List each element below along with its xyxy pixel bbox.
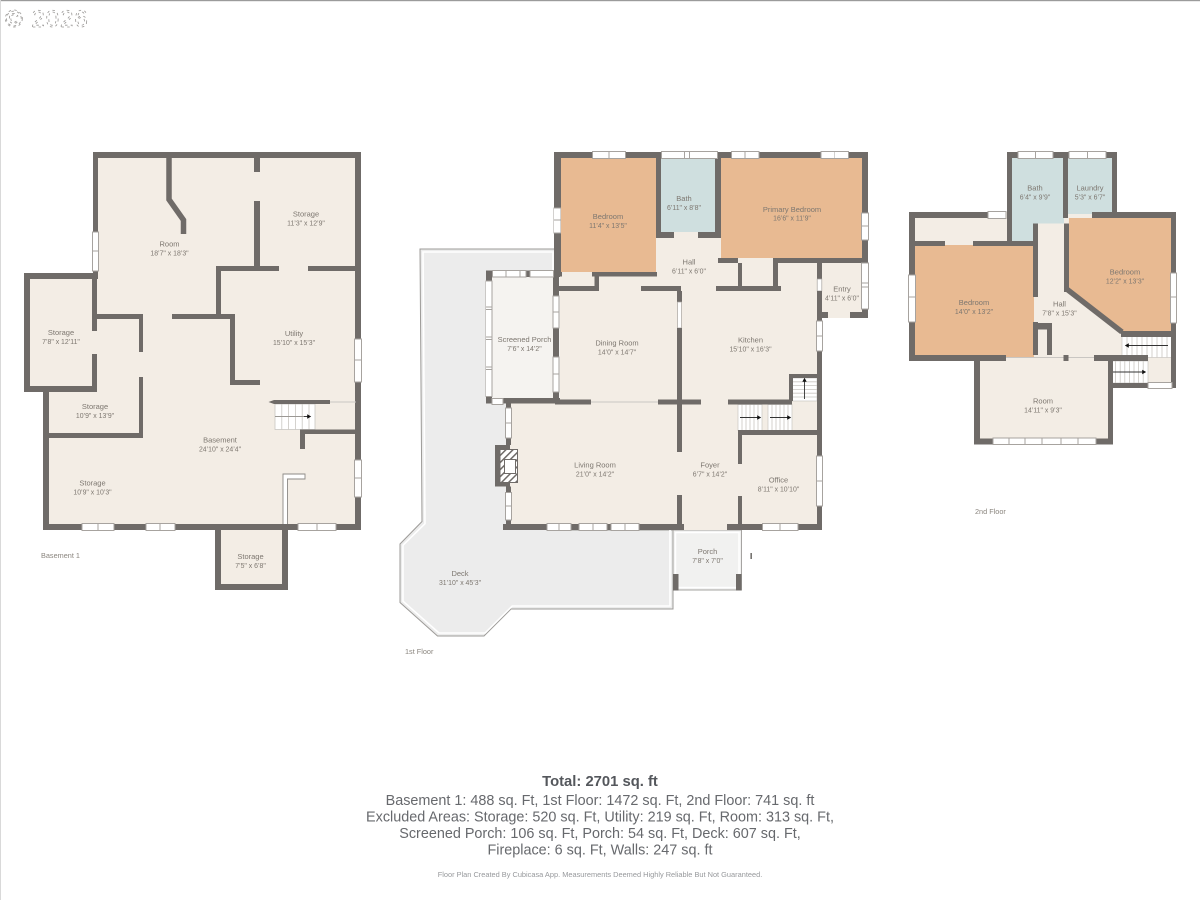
svg-text:Storage: Storage [48, 328, 74, 337]
svg-text:Bedroom: Bedroom [1110, 268, 1140, 277]
svg-text:Porch: Porch [698, 547, 718, 556]
svg-text:6’4" x 9’9": 6’4" x 9’9" [1020, 194, 1051, 201]
svg-text:Living Room: Living Room [574, 461, 616, 470]
svg-text:6’7" x 14’2": 6’7" x 14’2" [693, 471, 728, 478]
svg-text:7’8" x 7’0": 7’8" x 7’0" [692, 558, 723, 565]
svg-text:Entry: Entry [833, 285, 851, 294]
svg-text:10’9" x 13’9": 10’9" x 13’9" [76, 413, 115, 420]
svg-text:Laundry: Laundry [1076, 184, 1103, 193]
svg-text:Storage: Storage [237, 552, 263, 561]
svg-text:15’10" x 15’3": 15’10" x 15’3" [273, 340, 316, 347]
svg-text:Storage: Storage [82, 402, 108, 411]
svg-text:Utility: Utility [285, 329, 304, 338]
svg-text:15’10" x 16’3": 15’10" x 16’3" [729, 346, 772, 353]
svg-text:Excluded Areas: Storage: 520 s: Excluded Areas: Storage: 520 sq. Ft, Uti… [366, 810, 834, 826]
svg-text:11’3" x 12’9": 11’3" x 12’9" [287, 220, 325, 227]
svg-text:Screened Porch: Screened Porch [498, 335, 552, 344]
svg-text:Deck: Deck [451, 569, 468, 578]
svg-text:10’9" x 10’3": 10’9" x 10’3" [73, 489, 112, 496]
svg-text:Foyer: Foyer [700, 461, 720, 470]
svg-text:Bath: Bath [676, 194, 691, 203]
svg-text:11’4" x 13’5": 11’4" x 13’5" [589, 223, 627, 230]
svg-text:Office: Office [769, 476, 788, 485]
svg-text:1st Floor: 1st Floor [405, 647, 434, 656]
svg-text:6’11" x 8’8": 6’11" x 8’8" [667, 205, 701, 212]
svg-text:14’11" x 9’3": 14’11" x 9’3" [1024, 407, 1062, 414]
svg-text:Storage: Storage [293, 210, 319, 219]
svg-text:Floor Plan Created By Cubicasa: Floor Plan Created By Cubicasa App. Meas… [438, 870, 763, 879]
svg-text:Bedroom: Bedroom [593, 212, 623, 221]
svg-text:31’10" x 45’3": 31’10" x 45’3" [439, 580, 482, 587]
svg-text:Dining Room: Dining Room [595, 339, 638, 348]
svg-text:Kitchen: Kitchen [738, 336, 763, 345]
svg-text:14’0" x 14’7": 14’0" x 14’7" [598, 349, 637, 356]
svg-text:Total: 2701 sq. ft: Total: 2701 sq. ft [542, 774, 658, 790]
svg-text:Room: Room [1033, 397, 1053, 406]
svg-text:Bedroom: Bedroom [959, 298, 989, 307]
svg-text:7’8" x 15’3": 7’8" x 15’3" [1042, 310, 1077, 317]
svg-text:Bath: Bath [1027, 184, 1042, 193]
svg-text:14’0" x 13’2": 14’0" x 13’2" [955, 309, 994, 316]
svg-text:16’6" x 11’9": 16’6" x 11’9" [773, 216, 811, 223]
svg-text:© 2026: © 2026 [5, 6, 89, 33]
svg-text:6’11" x 6’0": 6’11" x 6’0" [672, 268, 706, 275]
svg-text:5’3" x 6’7": 5’3" x 6’7" [1075, 194, 1106, 201]
svg-text:Hall: Hall [1053, 300, 1066, 309]
svg-text:Primary Bedroom: Primary Bedroom [763, 205, 821, 214]
svg-text:7’8" x 12’11": 7’8" x 12’11" [42, 339, 80, 346]
svg-text:Basement 1: 488 sq. Ft, 1st Fl: Basement 1: 488 sq. Ft, 1st Floor: 1472 … [386, 793, 815, 809]
svg-text:24’10" x 24’4": 24’10" x 24’4" [199, 446, 242, 453]
svg-text:Basement: Basement [203, 436, 238, 445]
svg-text:7’5" x 6’8": 7’5" x 6’8" [235, 563, 266, 570]
svg-text:Room: Room [159, 240, 179, 249]
svg-text:Screened Porch: 106 sq. Ft, Po: Screened Porch: 106 sq. Ft, Porch: 54 sq… [399, 826, 801, 842]
svg-text:18’7" x 18’3": 18’7" x 18’3" [150, 250, 189, 257]
svg-text:Fireplace: 6 sq. Ft, Walls: 24: Fireplace: 6 sq. Ft, Walls: 247 sq. ft [487, 843, 712, 859]
svg-text:12’2" x 13’3": 12’2" x 13’3" [1106, 278, 1145, 285]
svg-text:4’11" x 6’0": 4’11" x 6’0" [825, 295, 859, 302]
svg-text:Storage: Storage [79, 479, 105, 488]
svg-text:7’6" x 14’2": 7’6" x 14’2" [507, 346, 542, 353]
svg-text:Basement 1: Basement 1 [41, 551, 80, 560]
svg-text:Hall: Hall [683, 258, 696, 267]
svg-text:21’0" x 14’2": 21’0" x 14’2" [576, 471, 615, 478]
svg-text:2nd Floor: 2nd Floor [975, 507, 1006, 516]
svg-text:8’11" x 10’10": 8’11" x 10’10" [758, 486, 800, 493]
